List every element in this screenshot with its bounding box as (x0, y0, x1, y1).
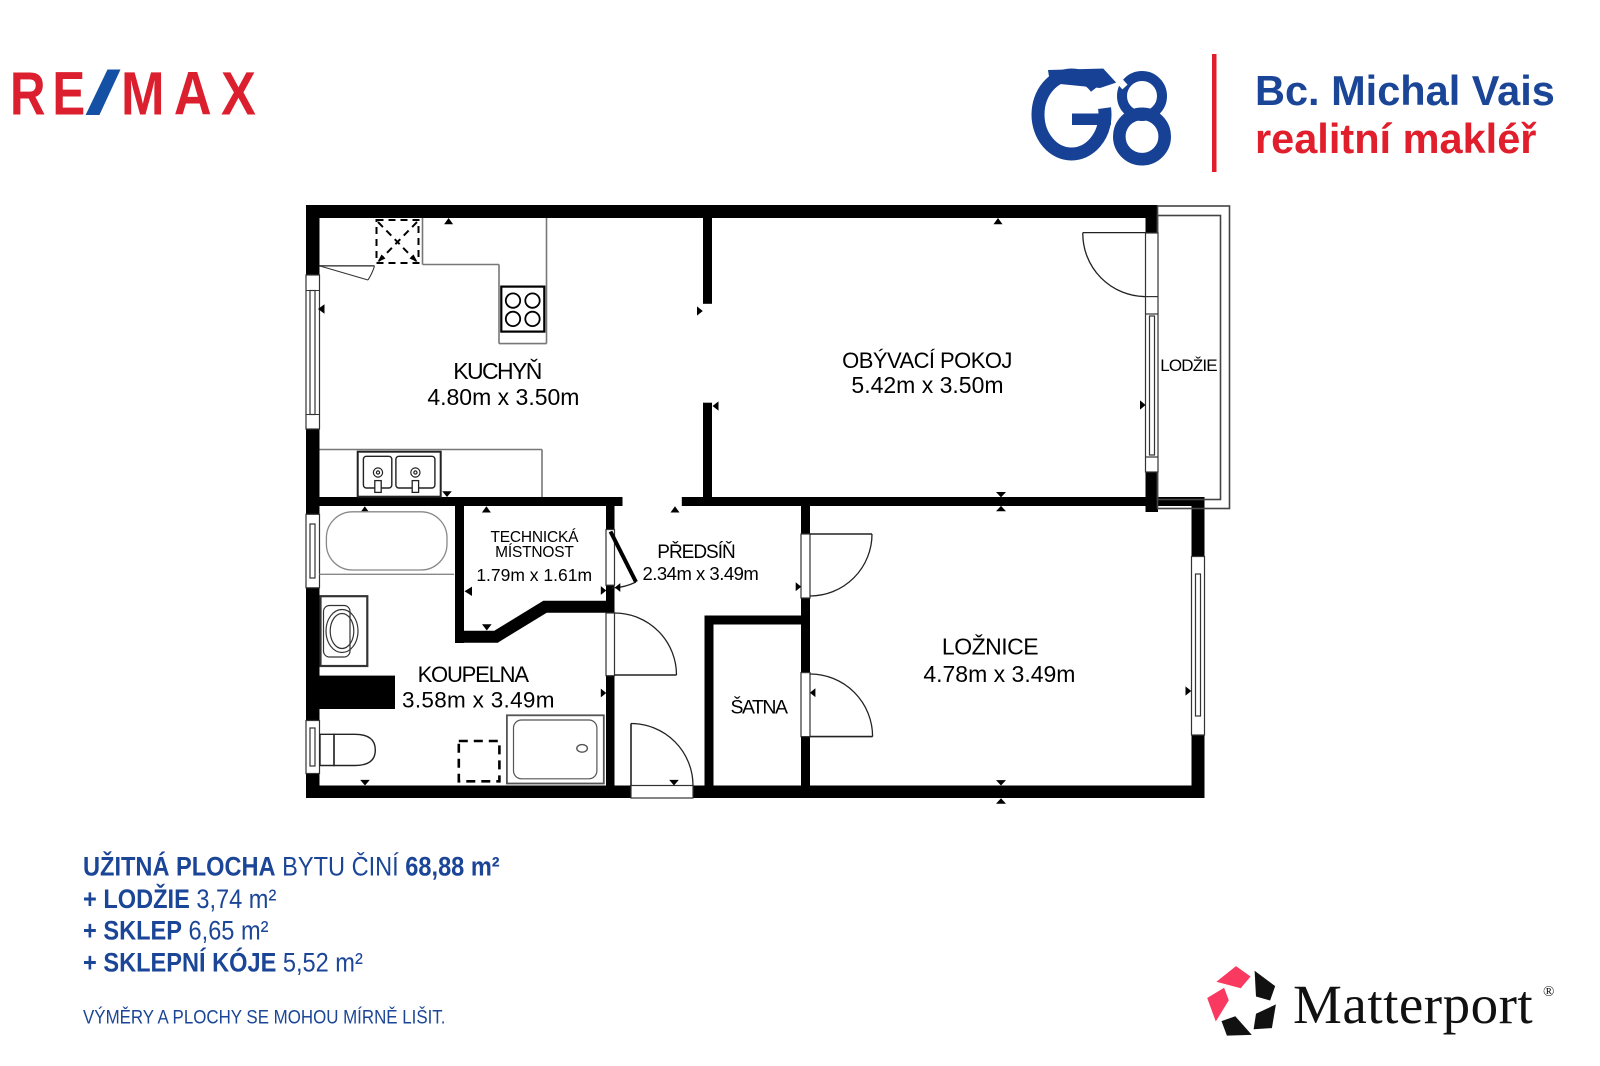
svg-text:MÍSTNOST: MÍSTNOST (495, 544, 574, 561)
svg-text:1.79m x 1.61m: 1.79m x 1.61m (476, 565, 592, 585)
svg-text:RE: RE (10, 59, 92, 127)
svg-text:realitní makléř: realitní makléř (1255, 115, 1537, 162)
svg-text:Matterport: Matterport (1293, 974, 1533, 1035)
svg-text:KOUPELNA: KOUPELNA (418, 662, 530, 687)
svg-text:LOŽNICE: LOŽNICE (942, 634, 1038, 660)
svg-text:4.78m x 3.49m: 4.78m x 3.49m (923, 661, 1075, 687)
svg-text:5.42m x 3.50m: 5.42m x 3.50m (851, 372, 1003, 398)
svg-text:KUCHYŇ: KUCHYŇ (453, 358, 541, 384)
svg-text:2.34m x 3.49m: 2.34m x 3.49m (642, 563, 758, 584)
svg-text:ŠATNA: ŠATNA (730, 696, 788, 719)
svg-text:+ SKLEPNÍ KÓJE 5,52 m²: + SKLEPNÍ KÓJE 5,52 m² (83, 946, 363, 978)
svg-text:UŽITNÁ PLOCHA BYTU ČINÍ 68,88: UŽITNÁ PLOCHA BYTU ČINÍ 68,88 m² (83, 850, 500, 882)
svg-text:®: ® (1543, 984, 1554, 1000)
svg-text:+ LODŽIE 3,74 m²: + LODŽIE 3,74 m² (83, 883, 276, 915)
svg-text:3.58m x 3.49m: 3.58m x 3.49m (402, 688, 555, 713)
svg-text:LODŽIE: LODŽIE (1160, 356, 1217, 375)
svg-text:+ SKLEP 6,65 m²: + SKLEP 6,65 m² (83, 916, 268, 946)
svg-text:VÝMĚRY A PLOCHY SE MOHOU MÍRNĚ: VÝMĚRY A PLOCHY SE MOHOU MÍRNĚ LIŠIT. (83, 1006, 445, 1028)
svg-text:4.80m x 3.50m: 4.80m x 3.50m (427, 384, 579, 410)
svg-text:OBÝVACÍ POKOJ: OBÝVACÍ POKOJ (842, 348, 1012, 373)
svg-text:PŘEDSÍŇ: PŘEDSÍŇ (657, 541, 735, 563)
svg-text:Bc. Michal Vais: Bc. Michal Vais (1255, 67, 1555, 114)
svg-text:MAX: MAX (121, 60, 265, 129)
